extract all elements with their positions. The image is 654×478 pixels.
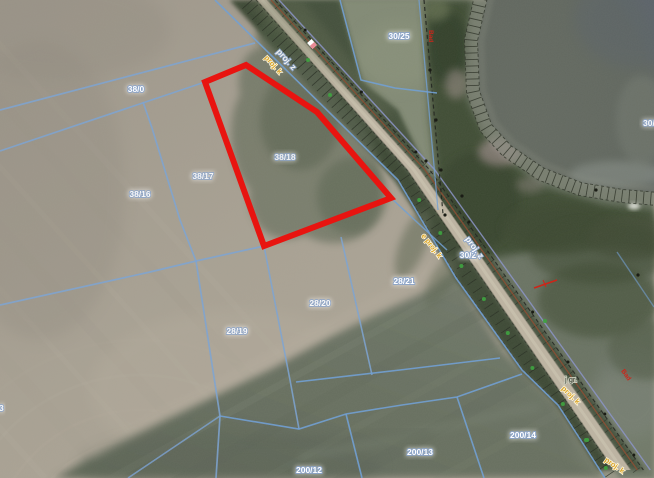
svg-text:Bad: Bad: [427, 30, 434, 42]
svg-text:30/25: 30/25: [388, 31, 410, 41]
svg-text:200/14: 200/14: [510, 430, 536, 440]
svg-text:38/16: 38/16: [129, 189, 151, 199]
svg-text:38/17: 38/17: [192, 171, 214, 181]
svg-text:200/12: 200/12: [296, 465, 322, 475]
svg-text:3: 3: [0, 403, 4, 413]
svg-text:j gr.: j gr.: [564, 375, 577, 384]
svg-text:28/20: 28/20: [309, 298, 331, 308]
svg-text:28/19: 28/19: [226, 326, 248, 336]
svg-text:38/0: 38/0: [128, 84, 145, 94]
svg-text:38/18: 38/18: [274, 152, 296, 162]
svg-text:200/13: 200/13: [407, 447, 433, 457]
svg-text:30/: 30/: [643, 118, 654, 128]
svg-text:28/21: 28/21: [393, 276, 415, 286]
